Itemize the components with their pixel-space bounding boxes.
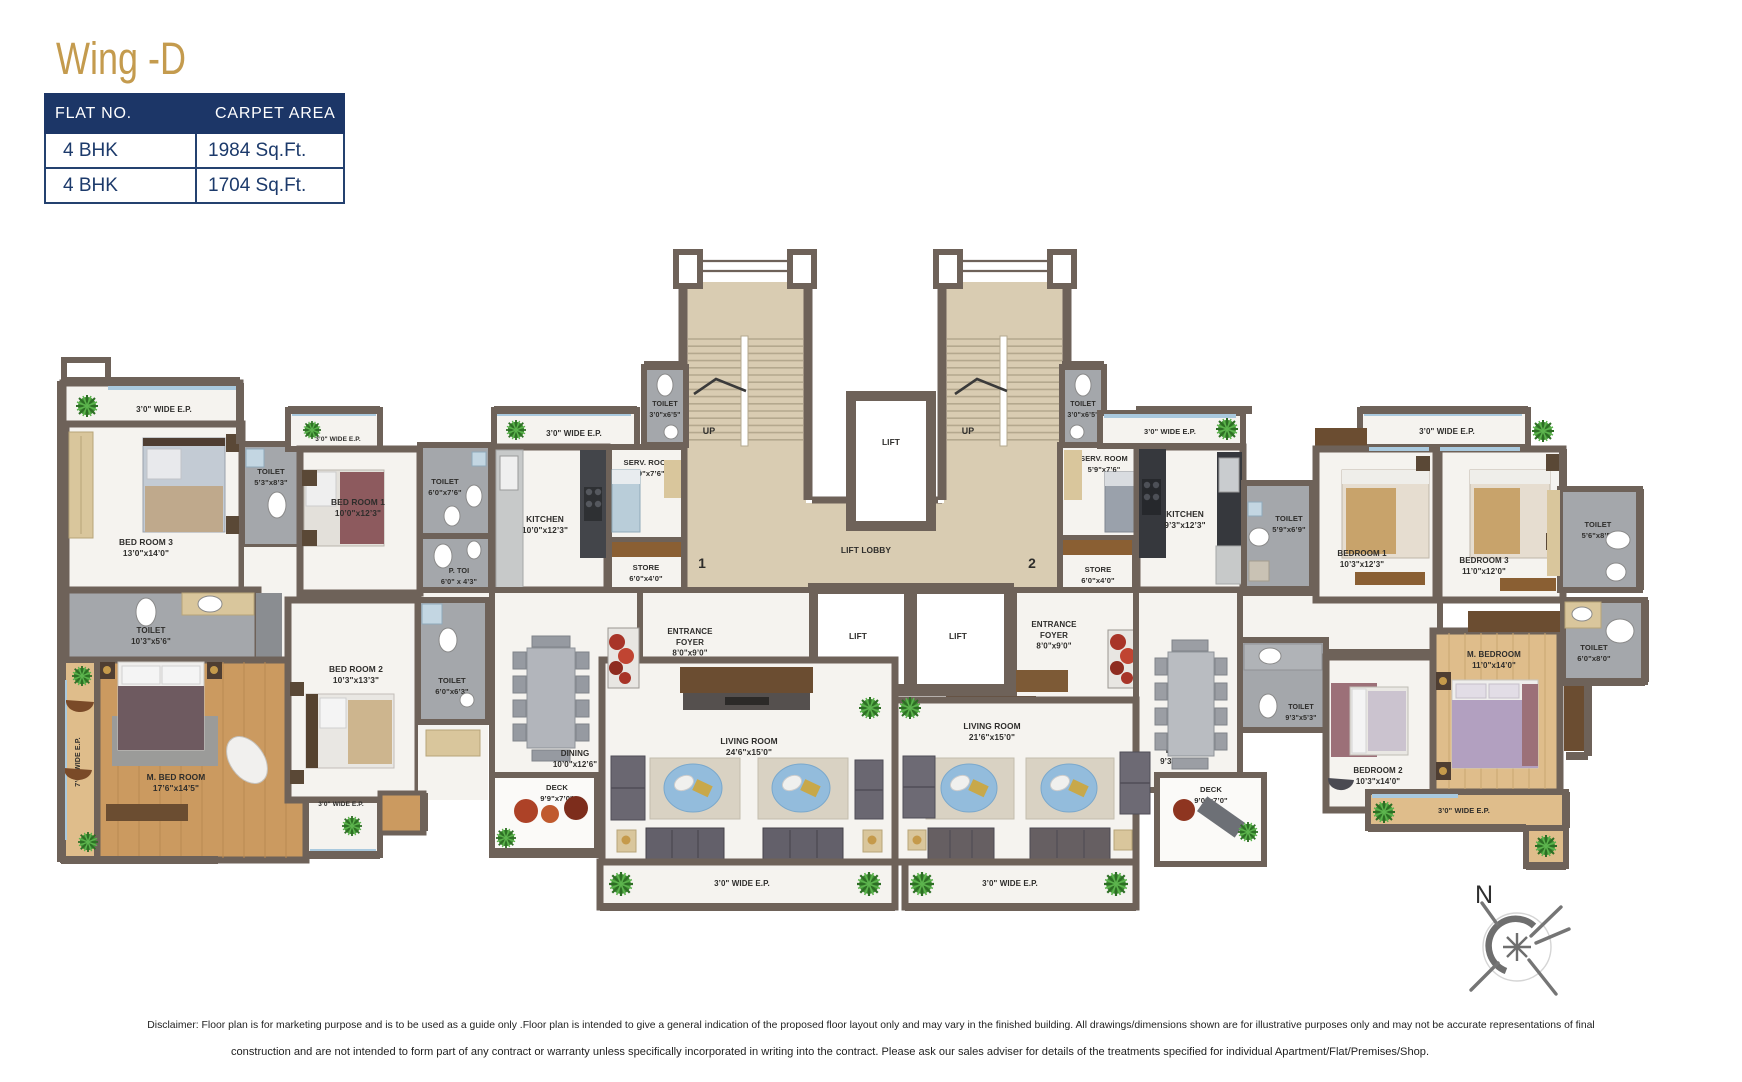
svg-text:TOILET6’0"x7’6": TOILET6’0"x7’6" [428,477,462,497]
svg-text:KITCHEN9’3"x12’3": KITCHEN9’3"x12’3" [1164,509,1205,530]
svg-text:LIFT: LIFT [849,631,868,641]
svg-text:TOILET5’9"x6’9": TOILET5’9"x6’9" [1272,514,1306,534]
svg-text:TOILET5’3"x8’3": TOILET5’3"x8’3" [254,467,288,487]
svg-text:KITCHEN10’0"x12’3": KITCHEN10’0"x12’3" [522,514,568,535]
svg-text:3’0" WIDE E.P.: 3’0" WIDE E.P. [982,879,1038,888]
svg-text:BED ROOM 313’0"x14’0": BED ROOM 313’0"x14’0" [119,537,173,558]
svg-text:TOILET6’0"x8’0": TOILET6’0"x8’0" [1577,643,1611,663]
svg-text:3’0" WIDE E.P.: 3’0" WIDE E.P. [315,436,361,443]
svg-text:STORE6’0"x4’0": STORE6’0"x4’0" [1081,565,1115,585]
svg-text:3’0" WIDE E.P.: 3’0" WIDE E.P. [1419,427,1475,436]
svg-text:3’0" WIDE E.P.: 3’0" WIDE E.P. [1144,427,1196,436]
svg-text:TOILET10’3"x5’6": TOILET10’3"x5’6" [131,626,171,646]
svg-text:BEDROOM 110’3"x12’3": BEDROOM 110’3"x12’3" [1337,549,1387,569]
svg-text:3’0" WIDE E.P.: 3’0" WIDE E.P. [318,801,364,808]
svg-text:BEDROOM 311’0"x12’0": BEDROOM 311’0"x12’0" [1459,556,1509,576]
svg-text:STORE6’0"x4’0": STORE6’0"x4’0" [629,563,663,583]
svg-text:LIVING ROOM21’6"x15’0": LIVING ROOM21’6"x15’0" [963,721,1020,742]
svg-text:LIFT: LIFT [949,631,968,641]
svg-text:LIFT: LIFT [882,437,901,447]
svg-text:LIVING ROOM24’6"x15’0": LIVING ROOM24’6"x15’0" [720,736,777,757]
svg-text:BED ROOM 210’3"x13’3": BED ROOM 210’3"x13’3" [329,664,383,685]
svg-text:3’0" WIDE E.P.: 3’0" WIDE E.P. [1438,806,1490,815]
svg-text:UP: UP [703,426,715,436]
svg-text:N: N [1475,881,1493,909]
svg-text:M. BED ROOM17’6"x14’5": M. BED ROOM17’6"x14’5" [147,772,206,793]
svg-text:BEDROOM 210’3"x14’0": BEDROOM 210’3"x14’0" [1353,766,1403,786]
svg-text:UP: UP [962,426,974,436]
svg-text:2: 2 [1028,555,1036,571]
svg-text:TOILET6’0"x6’3": TOILET6’0"x6’3" [435,676,469,696]
svg-text:3’0" WIDE E.P.: 3’0" WIDE E.P. [714,879,770,888]
svg-text:BED ROOM 110’0"x12’3": BED ROOM 110’0"x12’3" [331,497,385,518]
svg-text:M. BEDROOM11’0"x14’0": M. BEDROOM11’0"x14’0" [1467,650,1521,670]
svg-text:3’0" WIDE E.P.: 3’0" WIDE E.P. [136,405,192,414]
svg-text:LIFT LOBBY: LIFT LOBBY [841,545,892,555]
svg-text:1: 1 [698,555,706,571]
svg-text:3’0" WIDE E.P.: 3’0" WIDE E.P. [546,429,602,438]
